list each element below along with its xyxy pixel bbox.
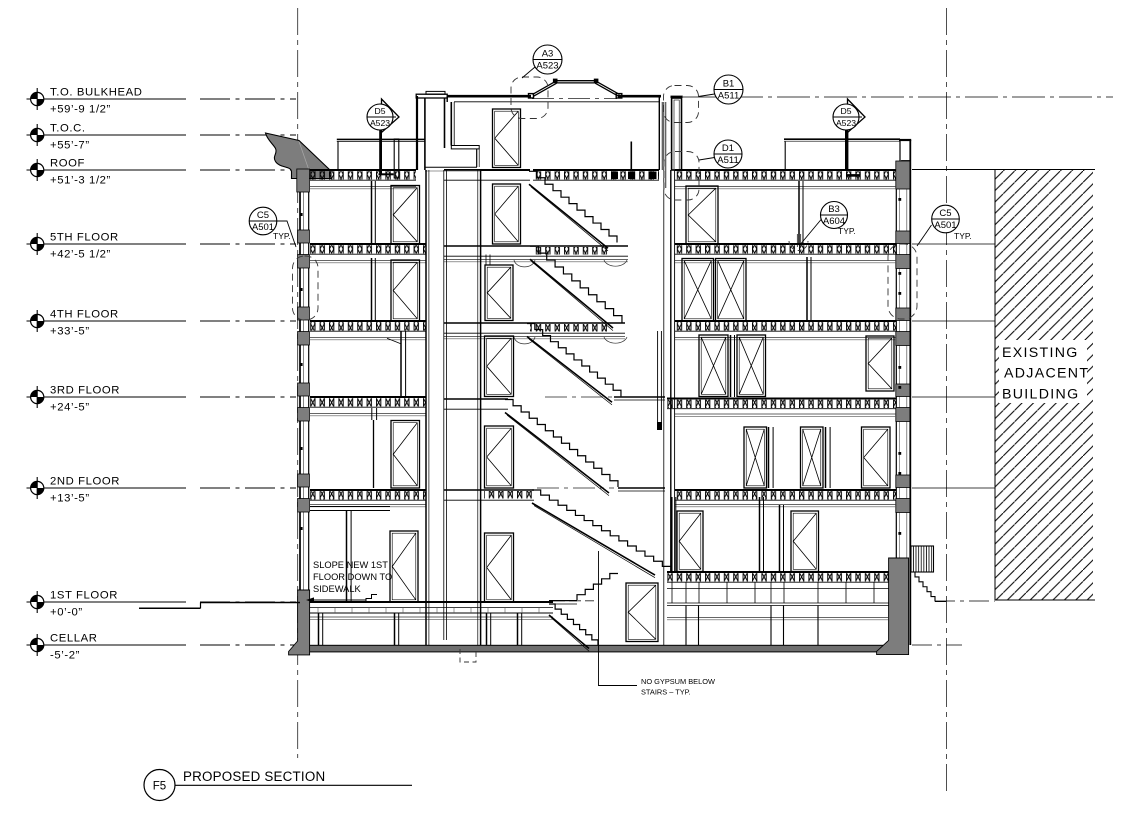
svg-text:+33’-5”: +33’-5”	[50, 326, 90, 338]
svg-text:T.O. BULKHEAD: T.O. BULKHEAD	[50, 87, 143, 99]
svg-text:A501: A501	[252, 222, 274, 233]
svg-text:D5: D5	[375, 106, 386, 116]
svg-text:4TH FLOOR: 4TH FLOOR	[50, 309, 119, 321]
svg-text:+59’-9 1/2”: +59’-9 1/2”	[50, 104, 111, 116]
svg-text:NO GYPSUM BELOW: NO GYPSUM BELOW	[641, 677, 715, 686]
svg-text:TYP.: TYP.	[954, 231, 972, 241]
svg-text:B1: B1	[723, 78, 735, 89]
svg-text:C5: C5	[939, 208, 951, 219]
svg-text:CELLAR: CELLAR	[50, 633, 98, 645]
svg-text:EXISTING: EXISTING	[1002, 345, 1079, 361]
svg-text:ADJACENT: ADJACENT	[1004, 366, 1089, 382]
svg-text:TYP.: TYP.	[838, 226, 856, 236]
svg-text:A501: A501	[934, 220, 956, 231]
svg-text:SIDEWALK: SIDEWALK	[313, 584, 361, 594]
svg-text:D1: D1	[722, 143, 734, 154]
svg-text:5TH FLOOR: 5TH FLOOR	[50, 232, 119, 244]
svg-text:3RD FLOOR: 3RD FLOOR	[50, 385, 120, 397]
svg-text:D5: D5	[841, 106, 852, 116]
svg-text:A511: A511	[717, 155, 738, 166]
svg-text:A523: A523	[536, 61, 558, 72]
svg-text:+13’-5”: +13’-5”	[50, 493, 90, 505]
svg-text:STAIRS – TYP.: STAIRS – TYP.	[641, 688, 691, 697]
svg-text:+24’-5”: +24’-5”	[50, 402, 90, 414]
svg-text:A511: A511	[718, 91, 739, 102]
svg-text:A3: A3	[542, 48, 554, 59]
svg-text:F5: F5	[153, 781, 166, 793]
svg-text:+51’-3 1/2”: +51’-3 1/2”	[50, 175, 111, 187]
svg-text:PROPOSED SECTION: PROPOSED SECTION	[183, 769, 325, 784]
svg-text:TYP.: TYP.	[273, 231, 291, 241]
svg-text:BUILDING: BUILDING	[1002, 387, 1079, 403]
svg-text:+55’-7”: +55’-7”	[50, 140, 90, 152]
svg-text:-5’-2”: -5’-2”	[50, 650, 80, 662]
svg-text:C5: C5	[257, 210, 269, 221]
svg-text:1ST FLOOR: 1ST FLOOR	[50, 590, 118, 602]
svg-text:SLOPE NEW 1ST: SLOPE NEW 1ST	[313, 560, 388, 570]
svg-text:A523: A523	[836, 118, 856, 128]
svg-text:ROOF: ROOF	[50, 158, 85, 170]
svg-text:A523: A523	[370, 118, 390, 128]
svg-text:FLOOR DOWN TO: FLOOR DOWN TO	[313, 572, 392, 582]
svg-text:2ND FLOOR: 2ND FLOOR	[50, 476, 120, 488]
svg-text:+0’-0”: +0’-0”	[50, 607, 83, 619]
svg-text:B3: B3	[828, 204, 840, 215]
svg-text:+42’-5 1/2”: +42’-5 1/2”	[50, 249, 111, 261]
svg-text:T.O.C.: T.O.C.	[50, 123, 86, 135]
